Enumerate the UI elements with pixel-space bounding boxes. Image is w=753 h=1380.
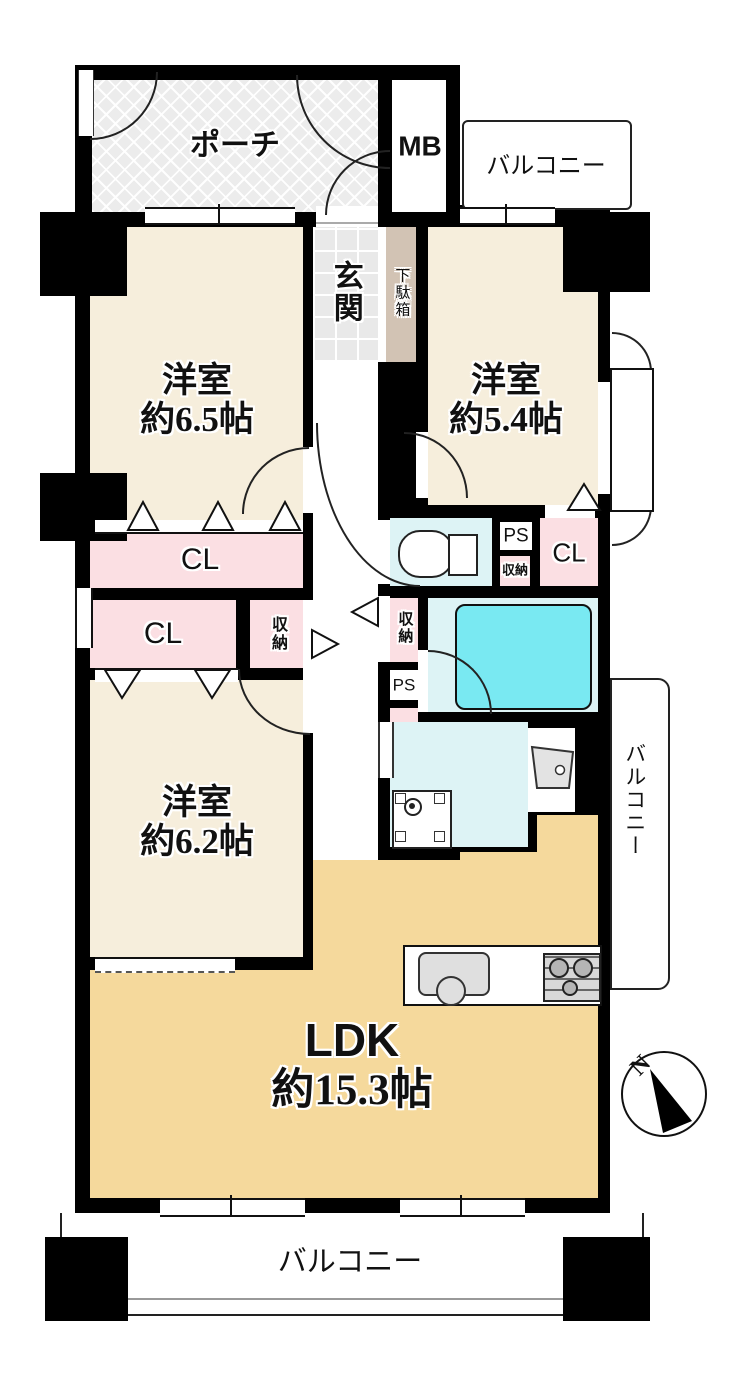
washer-corner: [434, 793, 445, 804]
window-room2-top: [460, 207, 555, 225]
pink-strip: [390, 708, 418, 722]
washer-corner: [395, 831, 406, 842]
room3-label: 洋室 約6.2帖: [140, 783, 254, 861]
door-gap-bathroom: [418, 650, 428, 712]
room2-name: 洋室: [449, 361, 563, 400]
pillar: [45, 1237, 128, 1321]
meter-box-label: MB: [398, 130, 442, 161]
balcony-right-label: バルコニー: [622, 743, 646, 858]
stove-burner-small: [562, 980, 578, 996]
ps1-label: PS: [503, 525, 528, 546]
pillar: [563, 1237, 650, 1321]
closet3-front-opening: [545, 505, 595, 518]
ldk-size: 約15.3帖: [271, 1067, 432, 1115]
pillar: [563, 212, 650, 292]
bay-window-gap: [598, 382, 610, 494]
storage-hall-label: 収納: [268, 616, 286, 652]
balcony-rail-line: [66, 1298, 636, 1300]
basin-nook: [528, 728, 575, 812]
door-gap-storage-hall: [303, 600, 313, 668]
bay-window-box: [610, 368, 654, 512]
room1-size: 約6.5帖: [140, 400, 254, 439]
ldk-name: LDK: [271, 1015, 432, 1067]
shoe-cabinet-label: 下駄箱: [393, 268, 410, 319]
pillar: [40, 212, 127, 296]
room3-size: 約6.2帖: [140, 822, 254, 861]
bay-window-arc-top: [612, 332, 652, 372]
window-tick: [505, 204, 507, 224]
genkan-label: 玄関: [328, 260, 362, 324]
balcony-top-label: バルコニー: [486, 154, 606, 181]
washer-corner: [434, 831, 445, 842]
room3-name: 洋室: [140, 783, 254, 822]
closet1-label: CL: [181, 543, 219, 577]
room2-size: 約5.4帖: [449, 400, 563, 439]
toilet-bowl: [398, 530, 454, 578]
sliding-door-washroom: [378, 722, 394, 778]
closet2-front-opening: [95, 668, 238, 682]
storage-bath-label: 収納: [396, 611, 413, 645]
bay-window-arc-bottom: [612, 506, 652, 546]
window-ldk-bottom-left: [160, 1198, 305, 1217]
floor-plan: N ポーチ MB バルコニー 玄関 下駄箱 洋室 約6.5帖 洋室 約5.4帖 …: [0, 0, 753, 1380]
window-left-wall: [75, 588, 93, 648]
closet3-label: CL: [552, 538, 585, 567]
balcony-bottom-label: バルコニー: [278, 1246, 422, 1278]
genkan-geta-gap: [378, 227, 386, 362]
room1-name: 洋室: [140, 361, 254, 400]
stove-burner-left: [549, 958, 569, 978]
ps2-label: PS: [393, 675, 416, 694]
window-tick: [218, 204, 220, 224]
porch-label: ポーチ: [190, 129, 280, 163]
storage-small-label: 収納: [502, 564, 528, 579]
room1-label: 洋室 約6.5帖: [140, 361, 254, 439]
closet2-label: CL: [144, 617, 182, 651]
window-tick: [230, 1195, 232, 1215]
kitchen-sink-drain: [436, 976, 466, 1006]
window-room3-bottom: [95, 957, 235, 973]
closet1-front-opening: [95, 520, 303, 534]
washer-faucet-dot: [409, 803, 415, 809]
stove-burner-right: [573, 958, 593, 978]
door-gap-storage-bath: [378, 596, 390, 662]
toilet-tank: [448, 534, 478, 576]
room2-label: 洋室 約5.4帖: [449, 361, 563, 439]
window-tick: [460, 1195, 462, 1215]
window-room1-top: [145, 207, 295, 225]
window-ldk-bottom-right: [400, 1198, 525, 1217]
ldk-label: LDK 約15.3帖: [271, 1015, 432, 1115]
entrance-threshold: [316, 222, 378, 224]
